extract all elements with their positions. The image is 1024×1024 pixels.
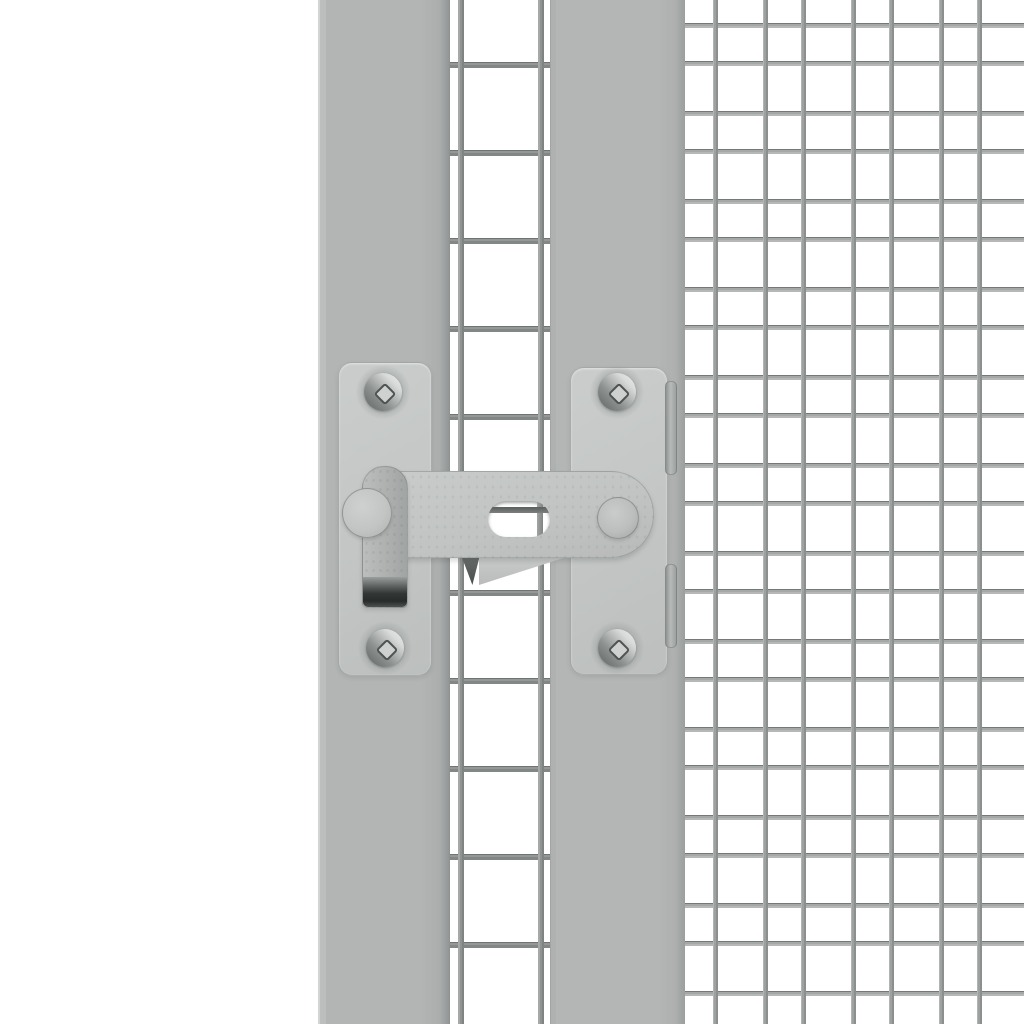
edge-clip-bottom <box>665 564 677 648</box>
wire-mesh-panel-right <box>684 0 1024 1024</box>
edge-clip-top <box>665 381 677 475</box>
screw-top-left <box>356 365 410 419</box>
screw-bottom-left <box>358 621 412 675</box>
latch-pin-knob <box>597 497 639 539</box>
mesh-wire-vertical <box>851 0 856 1024</box>
latch-handle-grip-lip <box>363 577 407 607</box>
mesh-wire-vertical <box>713 0 718 1024</box>
mesh-wire-through-slot-horizontal <box>488 507 550 513</box>
mesh-wire-vertical <box>939 0 944 1024</box>
mesh-wire-vertical <box>801 0 806 1024</box>
mesh-wire-vertical <box>977 0 982 1024</box>
screw-bottom-right <box>590 621 644 675</box>
mesh-wire-vertical <box>763 0 768 1024</box>
product-photo <box>0 0 1024 1024</box>
pivot-washer <box>342 488 392 538</box>
latch-bar-slot <box>488 501 550 537</box>
screw-top-right <box>590 365 644 419</box>
mesh-wire-vertical <box>889 0 894 1024</box>
